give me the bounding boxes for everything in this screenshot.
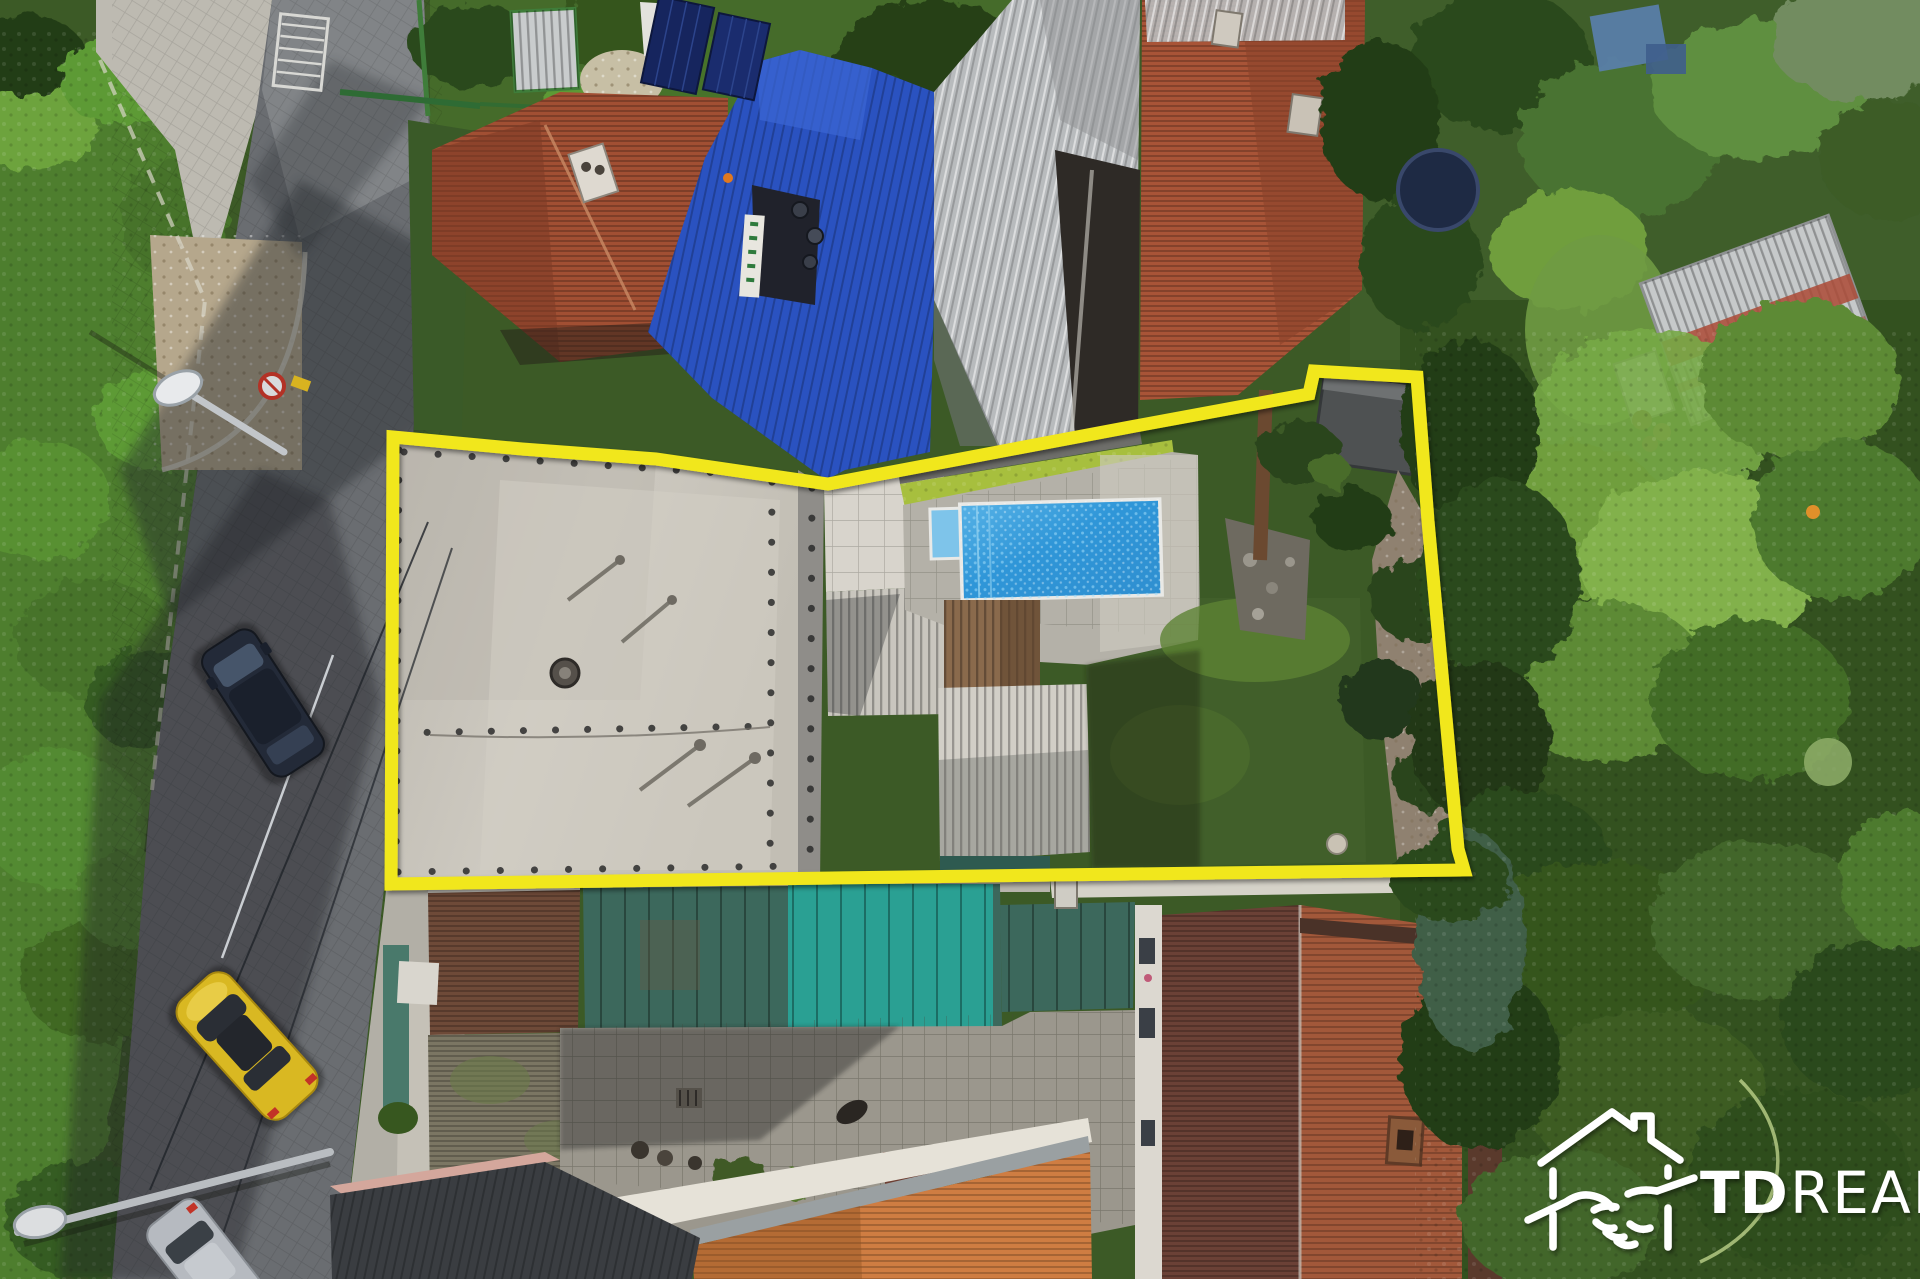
trampoline [1398, 150, 1478, 230]
logo-text: TD REAL [1700, 1159, 1920, 1227]
swimming-pool [930, 499, 1162, 601]
logo-text-real: REAL [1790, 1159, 1920, 1227]
orange-ball [1806, 505, 1820, 519]
corrugated-shed-top [511, 8, 579, 91]
pergola-roof [938, 684, 1090, 878]
wooden-deck [944, 600, 1040, 692]
aerial-photo: TD REAL [0, 0, 1920, 1279]
logo-text-td: TD [1700, 1159, 1788, 1227]
